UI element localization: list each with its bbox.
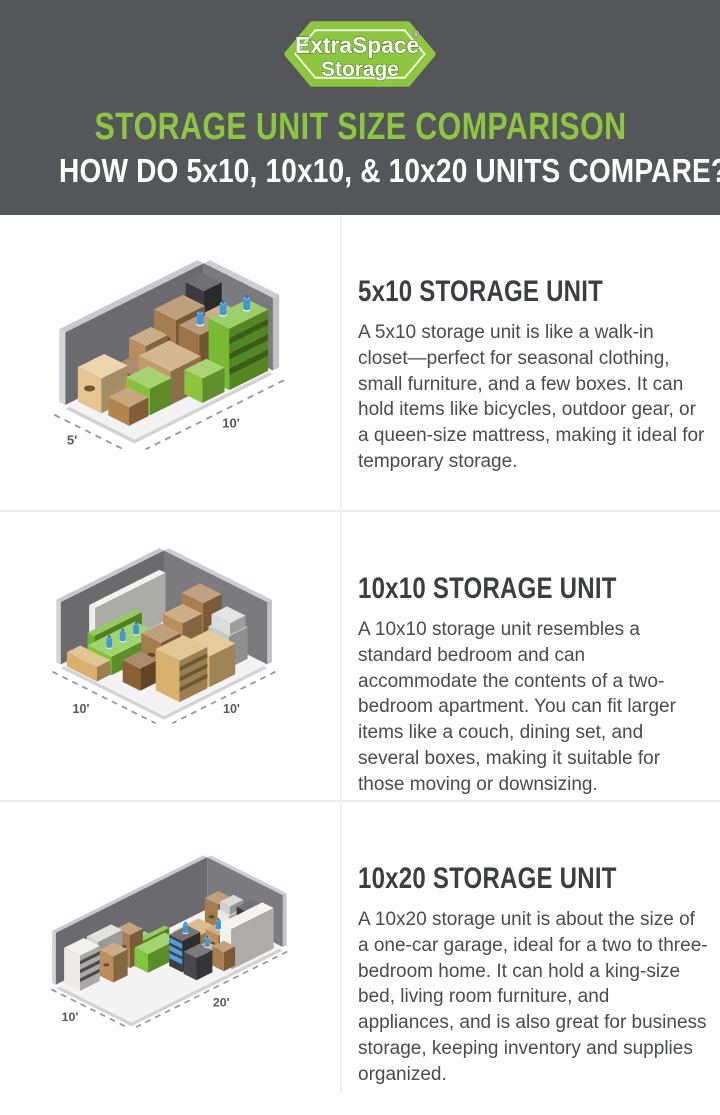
- dimension-label-left: 10': [73, 702, 90, 716]
- section-body-5x10: A 5x10 storage unit is like a walk-in cl…: [358, 320, 708, 475]
- text-10x20: 10x20 STORAGE UNIT A 10x20 storage unit …: [340, 802, 720, 1115]
- section-10x20: 10' 20' 10x20 STORAGE UNIT A 10x20 stora…: [0, 800, 720, 1115]
- section-5x10: 5' 10' 5x10 STORAGE UNIT A 5x10 storage …: [0, 215, 720, 510]
- storage-size-infographic: ExtraSpace ® Storage STORAGE UNIT SIZE C…: [0, 0, 720, 1115]
- comparison-sections: 5' 10' 5x10 STORAGE UNIT A 5x10 storage …: [0, 215, 720, 1115]
- section-10x10: 10' 10' 10x10 STORAGE UNIT A 10x10 stora…: [0, 510, 720, 800]
- page-subtitle: HOW DO 5x10, 10x10, & 10x20 UNITS COMPAR…: [0, 152, 720, 190]
- text-10x10: 10x10 STORAGE UNIT A 10x10 storage unit …: [340, 512, 720, 800]
- column-divider: [340, 215, 342, 1093]
- dimension-label-right: 10': [223, 702, 240, 716]
- section-heading-10x20: 10x20 STORAGE UNIT: [358, 864, 708, 894]
- isometric-5x10-unit-illustration: 5' 10': [50, 259, 296, 460]
- logo-text-line1: ExtraSpace: [295, 32, 419, 58]
- figure-10x20: 10' 20': [0, 802, 340, 1115]
- logo-registered-mark: ®: [413, 29, 420, 39]
- isometric-10x10-unit-illustration: 10' 10': [46, 545, 282, 735]
- dimension-label-right: 10': [222, 415, 240, 430]
- section-heading-10x10: 10x10 STORAGE UNIT: [358, 574, 708, 604]
- page-title: STORAGE UNIT SIZE COMPARISON: [0, 106, 720, 149]
- extra-space-storage-logo: ExtraSpace ® Storage: [284, 17, 436, 91]
- figure-10x10: 10' 10': [0, 512, 340, 800]
- section-body-10x20: A 10x20 storage unit is about the size o…: [358, 907, 708, 1088]
- dimension-label-left: 5': [67, 432, 77, 447]
- header: ExtraSpace ® Storage STORAGE UNIT SIZE C…: [0, 0, 720, 215]
- figure-5x10: 5' 10': [0, 215, 340, 510]
- section-heading-5x10: 5x10 STORAGE UNIT: [358, 277, 708, 307]
- logo-text-line2: Storage: [321, 58, 399, 81]
- section-body-10x10: A 10x10 storage unit resembles a standar…: [358, 617, 708, 798]
- dimension-label-left: 10': [62, 1010, 79, 1024]
- isometric-10x20-unit-illustration: 10' 20': [34, 851, 290, 1042]
- dimension-label-right: 20': [213, 996, 230, 1010]
- text-5x10: 5x10 STORAGE UNIT A 5x10 storage unit is…: [340, 215, 720, 510]
